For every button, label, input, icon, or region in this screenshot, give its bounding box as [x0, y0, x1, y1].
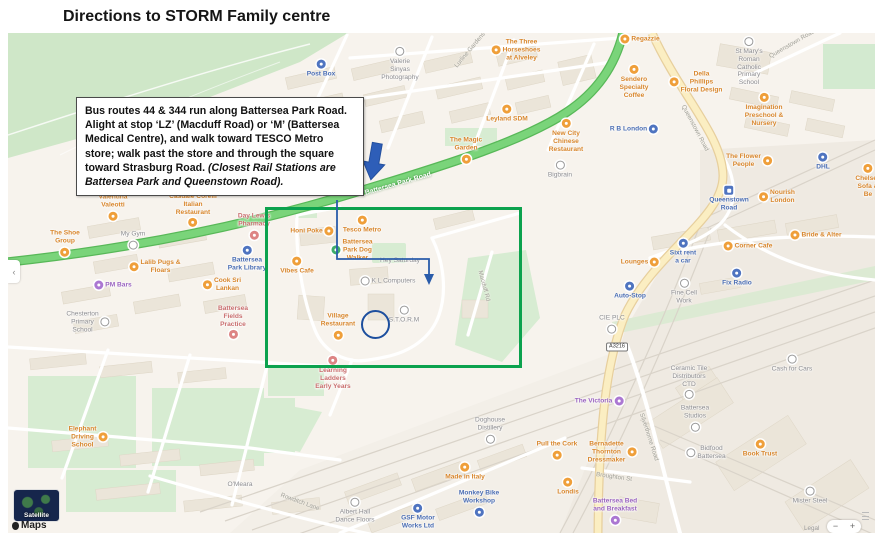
pan-left-control[interactable]: ‹ — [8, 260, 20, 283]
map-poi[interactable]: Fix Radio — [722, 269, 752, 288]
poi-label: Della Phillips Floral Design — [681, 70, 723, 93]
poi-label: Battersea Studios — [681, 405, 709, 421]
poi-label: O'Meara — [227, 481, 252, 489]
map-poi[interactable]: Chelsea Sofa & Be — [855, 164, 875, 198]
zoom-in-button[interactable]: + — [850, 521, 855, 532]
poi-icon — [625, 282, 634, 291]
poi-label: New City Chinese Restaurant — [549, 130, 583, 153]
poi-label: GSF Motor Works Ltd — [401, 515, 435, 531]
map-poi[interactable]: Made in Italy — [445, 463, 485, 482]
poi-label: Cook Sri Lankan — [214, 277, 241, 293]
poi-icon — [316, 60, 325, 69]
poi-label: The Magic Garden — [450, 137, 482, 153]
poi-label: Cash for Cars — [772, 366, 813, 374]
map-poi[interactable]: Book Trust — [743, 440, 777, 459]
poi-icon — [203, 281, 212, 290]
poi-label: Hey Saturday — [380, 257, 420, 265]
map-poi[interactable]: O'Meara — [227, 481, 252, 489]
map-poi[interactable]: Battersea Studios — [681, 405, 709, 432]
poi-icon — [242, 246, 251, 255]
map-poi[interactable]: Cook Sri Lankan — [203, 277, 241, 293]
map-world: The Three Horseshoes at AlveleyLeyland S… — [8, 33, 875, 533]
map-poi[interactable]: GSF Motor Works Ltd — [401, 504, 435, 531]
poi-icon — [188, 218, 197, 227]
map-poi[interactable]: Elephant Driving School — [69, 425, 108, 448]
poi-label: Auto-Stop — [614, 293, 646, 301]
poi-icon — [614, 397, 623, 406]
poi-icon — [863, 164, 872, 173]
poi-icon — [492, 45, 501, 54]
map-poi[interactable]: Albert Hall Dance Floors — [335, 498, 374, 525]
map-poi[interactable]: Leyland SDM — [486, 105, 527, 124]
poi-label: Regazzie — [631, 35, 659, 43]
poi-icon — [229, 330, 238, 339]
poi-label: Sixt rent a car — [670, 250, 696, 266]
poi-icon — [460, 463, 469, 472]
map-poi[interactable]: S.T.O.R.M — [389, 306, 419, 325]
poi-icon — [331, 245, 340, 254]
poi-icon — [650, 258, 659, 267]
poi-icon — [745, 37, 754, 46]
poi-icon — [690, 422, 699, 431]
poi-icon — [108, 211, 117, 220]
poi-label: Monkey Bike Workshop — [459, 490, 499, 506]
poi-label: Honi Poke — [290, 227, 322, 235]
poi-label: Pull the Cork — [537, 441, 578, 449]
map-poi[interactable]: CIE PLC — [599, 315, 625, 334]
map-viewport[interactable]: The Three Horseshoes at AlveleyLeyland S… — [8, 33, 875, 533]
poi-label: Mister Steel — [793, 498, 828, 506]
map-poi[interactable]: The Victoria — [575, 397, 624, 406]
poi-label: Bigbrain — [548, 172, 572, 180]
poi-label: Vibes Cafe — [280, 268, 314, 276]
map-poi[interactable]: Honi Poke — [290, 227, 333, 236]
poi-icon — [759, 93, 768, 102]
poi-icon — [627, 447, 636, 456]
poi-icon — [351, 498, 360, 507]
poi-label: Battersea Park Dog Walker — [342, 238, 372, 261]
poi-icon — [819, 153, 828, 162]
poi-label: The Shoe Group — [50, 230, 80, 246]
poi-icon — [686, 449, 695, 458]
poi-label: My Gym — [121, 231, 146, 239]
road-badge-a3216: A3216 — [606, 343, 628, 352]
poi-icon — [101, 317, 110, 326]
map-poi[interactable]: Regazzie — [620, 35, 659, 44]
poi-icon — [649, 125, 658, 134]
poi-icon — [620, 35, 629, 44]
map-poi[interactable]: Pull the Cork — [537, 441, 578, 460]
poi-label: Elephant Driving School — [69, 425, 97, 448]
map-poi[interactable]: Sendero Specialty Coffee — [620, 65, 649, 99]
poi-icon — [61, 247, 70, 256]
poi-icon — [680, 279, 689, 288]
poi-icon — [561, 119, 570, 128]
zoom-controls: − + — [827, 520, 861, 533]
map-poi[interactable]: The Three Horseshoes at Alveley — [492, 38, 541, 61]
maps-attribution-label: Maps — [21, 520, 47, 531]
poi-label: The Flower People — [726, 153, 761, 169]
poi-icon — [756, 440, 765, 449]
poi-icon — [611, 515, 620, 524]
poi-label: Queenstown Road — [709, 197, 749, 213]
poi-label: The Three Horseshoes at Alveley — [503, 38, 541, 61]
poi-icon — [552, 450, 561, 459]
poi-label: Lounges — [621, 258, 648, 266]
poi-label: Imagination Preschool & Nursery — [745, 104, 783, 127]
map-poi[interactable]: The Shoe Group — [50, 230, 80, 257]
poi-label: Learning Ladders Early Years — [315, 367, 350, 390]
poi-label: S.T.O.R.M — [389, 317, 419, 325]
map-poi[interactable]: St Mary's Roman Catholic Primary School — [735, 37, 762, 87]
map-poi[interactable]: Corner Cafe — [724, 242, 773, 251]
poi-icon — [249, 230, 258, 239]
poi-label: Ceramic Tile Distributors CTD — [671, 365, 708, 388]
poi-label: Bride & Alter — [801, 231, 841, 239]
map-poi[interactable]: Casuale Corelli Italian Restaurant — [169, 193, 217, 227]
map-poi[interactable]: Battersea Bed and Breakfast — [593, 498, 637, 525]
poi-label: K L Computers — [372, 277, 416, 285]
poi-icon — [325, 227, 334, 236]
map-poi[interactable]: Nourish London — [759, 189, 795, 205]
poi-label: PM Bars — [105, 281, 131, 289]
poi-label: Day Lewis Pharmacy — [238, 213, 270, 229]
map-poi[interactable]: Battersea Park Dog Walker — [331, 238, 372, 261]
poi-icon — [475, 507, 484, 516]
poi-label: DHL — [816, 164, 830, 172]
map-poi[interactable]: Londis — [557, 478, 579, 497]
poi-icon — [503, 105, 512, 114]
map-poi[interactable]: Doghouse Distillery — [475, 417, 505, 444]
map-poi[interactable]: Valentina Valeotti — [99, 194, 128, 221]
poi-label: Fine Cell Work — [671, 290, 697, 306]
poi-icon — [763, 157, 772, 166]
poi-icon — [806, 487, 815, 496]
poi-icon — [361, 277, 370, 286]
scale-indicator — [862, 512, 869, 520]
map-poi[interactable]: Post Box — [307, 60, 336, 79]
poi-icon — [396, 47, 405, 56]
poi-label: Nourish London — [770, 189, 795, 205]
poi-icon — [564, 478, 573, 487]
poi-label: Lalib Pugs & Floars — [141, 259, 181, 275]
poi-label: CIE PLC — [599, 315, 625, 323]
map-poi[interactable]: New City Chinese Restaurant — [549, 119, 583, 153]
map-poi[interactable]: My Gym — [121, 231, 146, 250]
map-poi[interactable]: Chesterton Primary School — [66, 310, 109, 333]
map-poi[interactable]: Della Phillips Floral Design — [670, 70, 723, 93]
poi-icon — [400, 306, 409, 315]
poi-icon — [790, 231, 799, 240]
map-poi[interactable]: The Flower People — [726, 153, 772, 169]
map-poi[interactable]: Queenstown Road — [709, 186, 749, 213]
poi-icon — [684, 390, 693, 399]
poi-label: Battersea Fields Practice — [218, 305, 248, 328]
map-poi[interactable]: Sixt rent a car — [670, 239, 696, 266]
poi-icon — [733, 269, 742, 278]
map-poi[interactable]: Valerie Sinyas Photography — [381, 47, 418, 81]
map-poi[interactable]: Learning Ladders Early Years — [315, 356, 350, 390]
poi-label: Made in Italy — [445, 474, 485, 482]
poi-label: Corner Cafe — [735, 242, 773, 250]
poi-icon — [486, 434, 495, 443]
poi-icon — [788, 355, 797, 364]
poi-icon — [670, 77, 679, 86]
poi-icon — [724, 242, 733, 251]
poi-icon — [357, 216, 366, 225]
apple-maps-attribution: Maps — [12, 520, 47, 531]
poi-label: Chelsea Sofa & Be — [855, 175, 875, 198]
poi-icon — [98, 432, 107, 441]
poi-icon — [292, 257, 301, 266]
poi-icon — [333, 330, 342, 339]
map-poi[interactable]: Bidfood Battersea — [686, 445, 725, 461]
satellite-toggle[interactable]: Satellite — [13, 489, 60, 522]
poi-label: Casuale Corelli Italian Restaurant — [169, 193, 217, 216]
map-poi[interactable]: Hey Saturday — [380, 257, 420, 265]
poi-label: Sendero Specialty Coffee — [620, 76, 649, 99]
poi-icon — [130, 263, 139, 272]
map-poi[interactable]: Lalib Pugs & Floars — [130, 259, 181, 275]
map-poi[interactable]: Bernadette Thornton Dressmaker — [588, 440, 637, 463]
map-poi[interactable]: DHL — [816, 153, 830, 172]
poi-icon — [678, 239, 687, 248]
map-poi[interactable]: K L Computers — [361, 277, 416, 286]
map-poi[interactable]: Lounges — [621, 258, 659, 267]
page-title: Directions to STORM Family centre — [63, 8, 330, 26]
poi-label: Post Box — [307, 71, 336, 79]
poi-label: Fix Radio — [722, 280, 752, 288]
apple-logo-icon — [12, 522, 19, 530]
map-poi[interactable]: Ceramic Tile Distributors CTD — [671, 365, 708, 399]
map-poi[interactable]: PM Bars — [94, 281, 131, 290]
map-poi[interactable]: Auto-Stop — [614, 282, 646, 301]
poi-icon — [608, 324, 617, 333]
map-poi[interactable]: Mister Steel — [793, 487, 828, 506]
poi-label: Tesco Metro — [343, 227, 381, 235]
poi-icon — [555, 161, 564, 170]
poi-label: Bidfood Battersea — [697, 445, 725, 461]
poi-label: Chesterton Primary School — [66, 310, 98, 333]
poi-label: The Victoria — [575, 397, 613, 405]
map-poi[interactable]: Bride & Alter — [790, 231, 841, 240]
map-poi[interactable]: The Magic Garden — [450, 137, 482, 164]
poi-label: Doghouse Distillery — [475, 417, 505, 433]
map-poi[interactable]: Tesco Metro — [343, 216, 381, 235]
map-poi[interactable]: Bigbrain — [548, 161, 572, 180]
map-poi[interactable]: Cash for Cars — [772, 355, 813, 374]
poi-label: Albert Hall Dance Floors — [335, 509, 374, 525]
poi-label: R B London — [610, 125, 647, 133]
poi-label: Village Restaurant — [321, 313, 355, 329]
map-poi[interactable]: Imagination Preschool & Nursery — [745, 93, 783, 127]
poi-icon — [94, 281, 103, 290]
poi-label: Bernadette Thornton Dressmaker — [588, 440, 626, 463]
poi-icon — [630, 65, 639, 74]
legal-link[interactable]: Legal — [804, 525, 819, 532]
poi-icon — [759, 193, 768, 202]
poi-icon — [413, 504, 422, 513]
poi-label: Book Trust — [743, 451, 777, 459]
map-poi[interactable]: Battersea Fields Practice — [218, 305, 248, 339]
map-poi[interactable]: Fine Cell Work — [671, 279, 697, 306]
directions-callout: Bus routes 44 & 344 run along Battersea … — [76, 97, 364, 196]
poi-label: Battersea Park Library — [228, 257, 266, 273]
poi-label: Battersea Bed and Breakfast — [593, 498, 637, 514]
poi-label: Valerie Sinyas Photography — [381, 58, 418, 81]
map-poi[interactable]: R B London — [610, 125, 658, 134]
poi-icon — [128, 240, 137, 249]
map-poi[interactable]: Day Lewis Pharmacy — [238, 213, 270, 240]
map-poi[interactable]: Village Restaurant — [321, 313, 355, 340]
map-poi[interactable]: Monkey Bike Workshop — [459, 490, 499, 517]
poi-label: St Mary's Roman Catholic Primary School — [735, 48, 762, 87]
poi-label: Leyland SDM — [486, 116, 527, 124]
poi-label: Londis — [557, 489, 579, 497]
poi-icon — [328, 356, 337, 365]
zoom-out-button[interactable]: − — [833, 521, 838, 532]
map-poi[interactable]: Battersea Park Library — [228, 246, 266, 273]
poi-icon — [462, 154, 471, 163]
map-poi[interactable]: Vibes Cafe — [280, 257, 314, 276]
rail-station-icon — [724, 186, 733, 195]
